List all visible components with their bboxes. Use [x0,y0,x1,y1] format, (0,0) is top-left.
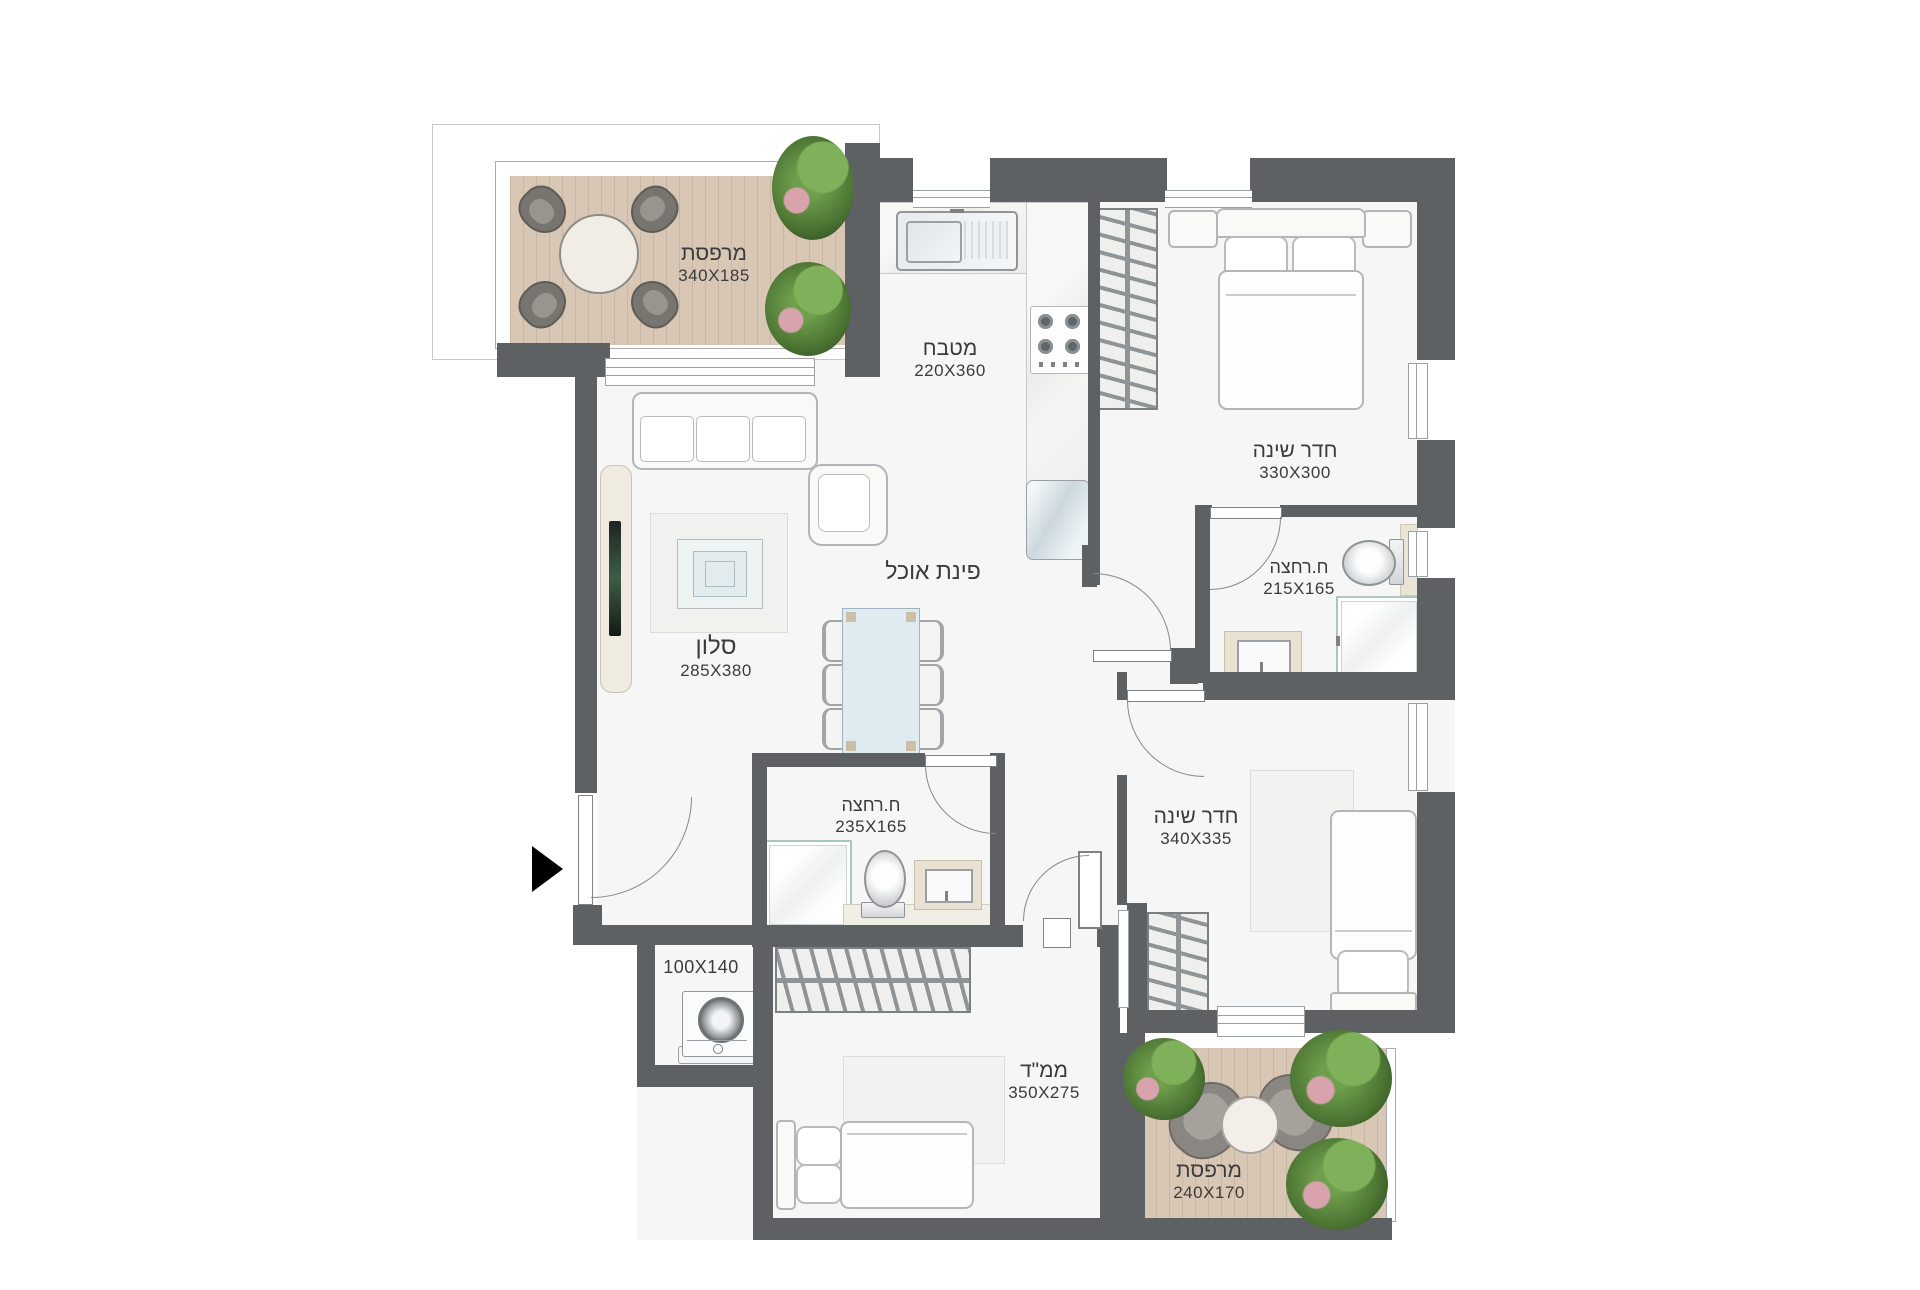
tv-screen [609,521,621,636]
entrance-arrow-icon [532,846,563,892]
label-bathroom-1: ח.רחצה 215X165 [1263,556,1335,599]
single-bed [1330,810,1417,1010]
dining-table [842,608,920,755]
label-kitchen: מטבח 220X360 [914,338,986,381]
bedroom-1-door [1093,650,1172,662]
toilet [860,850,906,918]
window-bedroom-1-top [1165,190,1252,208]
window-bedroom-2 [1408,703,1428,791]
shower [1336,596,1422,682]
nightstand [1362,210,1412,248]
mamad-door-frame [1043,918,1071,948]
label-mamad: ממ"ד 350X275 [1008,1060,1080,1103]
coffee-table [1221,1096,1279,1154]
label-bedroom-2: חדר שינה 340X335 [1154,806,1239,849]
sliding-door-balcony-top [605,358,815,386]
label-utility: 100X140 [663,957,739,978]
double-bed [1216,208,1366,410]
plant [765,262,851,356]
sofa [632,392,818,470]
window-bathroom-1 [1408,531,1428,577]
stove [1030,306,1090,374]
patio-table [559,214,639,294]
label-bedroom-1: חדר שינה 330X300 [1253,440,1338,483]
nightstand [1168,210,1218,248]
living-rug [650,513,788,633]
plant [1290,1030,1392,1127]
plant [1286,1138,1388,1230]
corridor-niche [1118,910,1129,1008]
toilet [1342,536,1404,586]
refrigerator [1026,480,1090,560]
shower [764,840,852,930]
label-dining: פינת אוכל [885,560,980,582]
bedroom-2-wardrobe [1147,912,1209,1015]
window-bedroom-1-side [1408,363,1428,439]
single-bed [776,1118,974,1210]
label-balcony-top: מרפסת 340X185 [678,243,750,286]
mamad-wardrobe [775,947,971,1013]
label-bathroom-2: ח.רחצה 235X165 [835,794,907,837]
washing-machine [682,991,755,1057]
kitchen-sink [896,211,1018,271]
label-balcony-bottom: מרפסת 240X170 [1173,1160,1245,1203]
armchair [808,464,888,546]
floor-plan: מרפסת 340X185 מטבח 220X360 חדר שינה 330X… [0,0,1920,1290]
tv-cabinet [600,465,632,693]
plant [772,136,854,240]
label-living-room: סלון 285X380 [680,634,752,681]
sliding-door-balcony-bottom [1217,1006,1305,1037]
window-kitchen [913,190,990,208]
bathroom-2-vanity [914,860,982,910]
bedroom-1-wardrobe [1096,208,1158,410]
plant [1123,1038,1205,1120]
